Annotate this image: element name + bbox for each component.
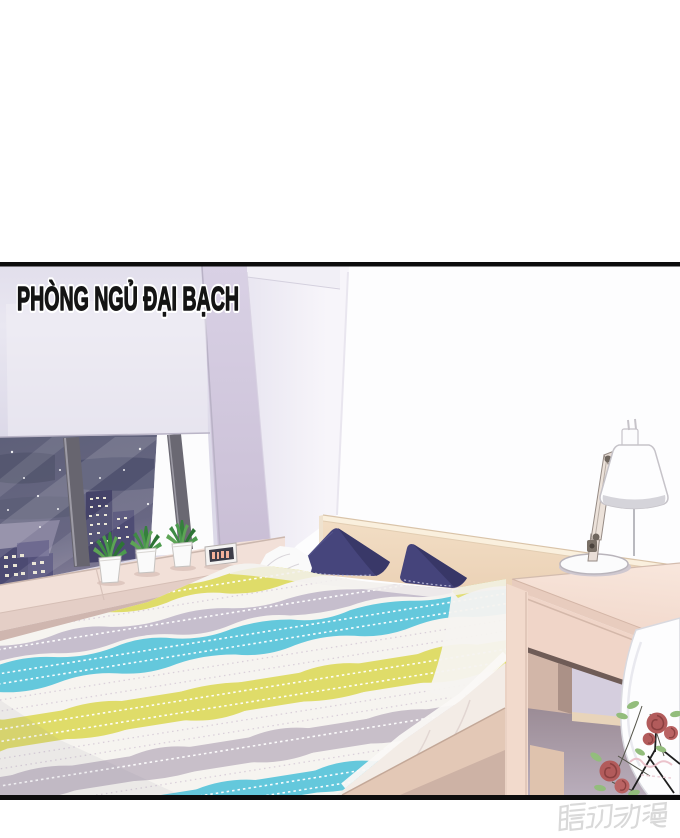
svg-text:PHÒNG NGỦ ĐẠI BẠCH: PHÒNG NGỦ ĐẠI BẠCH	[17, 280, 239, 317]
